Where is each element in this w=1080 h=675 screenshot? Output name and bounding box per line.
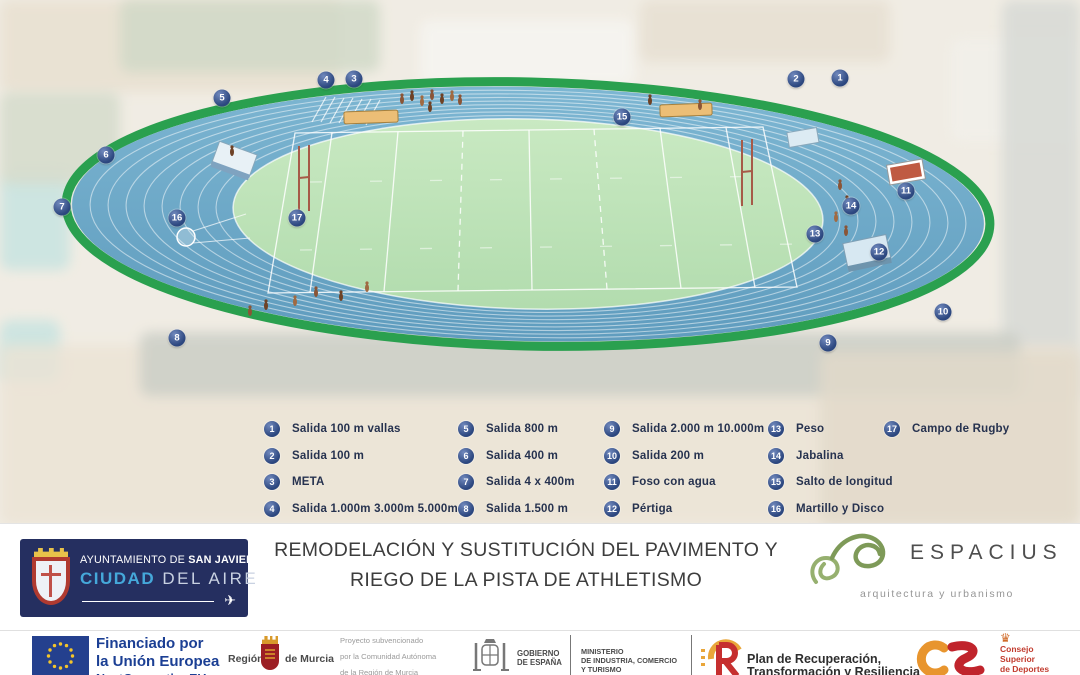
track-marker-3: 3: [346, 71, 363, 88]
track-marker-4: 4: [318, 72, 335, 89]
legend-column: 17Campo de Rugby: [884, 416, 1009, 443]
ministerio-line-1: MINISTERIO: [581, 647, 624, 656]
eu-flag-icon: [32, 636, 89, 675]
murcia-crest-icon: [261, 636, 279, 672]
espacius-glyph-icon: [806, 528, 902, 586]
legend-number-badge: 14: [768, 448, 784, 464]
legend-item-5: 5Salida 800 m: [458, 416, 575, 443]
title-line-1: REMODELACIÓN Y SUSTITUCIÓN DEL PAVIMENTO…: [250, 535, 802, 565]
espacius-name: ESPACIUS: [910, 541, 1063, 565]
plan-line-1: Plan de Recuperación,: [747, 652, 881, 666]
subsidy-line-3: de la Región de Murcia: [340, 668, 418, 675]
subsidy-line-2: por la Comunidad Autónoma: [340, 652, 436, 661]
legend-label: Jabalina: [796, 450, 844, 462]
legend-item-17: 17Campo de Rugby: [884, 416, 1009, 443]
recovery-plan-logo-icon: [699, 637, 743, 675]
legend-label: Salida 2.000 m 10.000m: [632, 423, 764, 435]
track-marker-9: 9: [820, 335, 837, 352]
track-marker-5: 5: [214, 90, 231, 107]
legend-label: Foso con agua: [632, 476, 716, 488]
subsidy-line-1: Proyecto subvencionado: [340, 636, 423, 645]
csd-line-2: Superior: [1000, 654, 1035, 664]
legend-item-1: 1Salida 100 m vallas: [264, 416, 458, 443]
legend-item-14: 14Jabalina: [768, 443, 893, 470]
legend-label: Salida 4 x 400m: [486, 476, 575, 488]
legend-number-badge: 2: [264, 448, 280, 464]
legend-number-badge: 10: [604, 448, 620, 464]
murcia-label-left: Región: [228, 653, 264, 665]
track-marker-6: 6: [98, 147, 115, 164]
legend-number-badge: 6: [458, 448, 474, 464]
legend-label: Pértiga: [632, 503, 672, 515]
san-javier-text: AYUNTAMIENTO DE SAN JAVIER CIUDAD DEL AI…: [80, 554, 238, 589]
del-aire-label: DEL AIRE: [155, 569, 258, 588]
track-marker-15: 15: [614, 109, 631, 126]
legend-item-8: 8Salida 1.500 m: [458, 496, 575, 523]
legend-number-badge: 16: [768, 501, 784, 517]
track-marker-11: 11: [898, 183, 915, 200]
title-band: AYUNTAMIENTO DE SAN JAVIER CIUDAD DEL AI…: [0, 523, 1080, 630]
legend-item-6: 6Salida 400 m: [458, 443, 575, 470]
legend-column: 9Salida 2.000 m 10.000m10Salida 200 m11F…: [604, 416, 764, 522]
espacius-tagline: arquitectura y urbanismo: [860, 588, 1014, 600]
legend-item-9: 9Salida 2.000 m 10.000m: [604, 416, 764, 443]
legend-label: Salida 400 m: [486, 450, 558, 462]
legend-item-10: 10Salida 200 m: [604, 443, 764, 470]
divider: [691, 635, 692, 675]
track-marker-16: 16: [169, 210, 186, 227]
legend-number-badge: 4: [264, 501, 280, 517]
legend-column: 13Peso14Jabalina15Salto de longitud16Mar…: [768, 416, 893, 522]
track-marker-10: 10: [935, 304, 952, 321]
gobierno-line-2: DE ESPAÑA: [517, 658, 562, 667]
legend-item-7: 7Salida 4 x 400m: [458, 469, 575, 496]
ciudad-label: CIUDAD: [80, 569, 155, 588]
legend-column: 1Salida 100 m vallas2Salida 100 m3META4S…: [264, 416, 458, 522]
legend-number-badge: 12: [604, 501, 620, 517]
underline: [82, 601, 214, 603]
legend-number-badge: 7: [458, 474, 474, 490]
csd-logo-icon: [910, 640, 992, 675]
legend-number-badge: 11: [604, 474, 620, 490]
legend-label: Martillo y Disco: [796, 503, 884, 515]
san-javier-crest-icon: [32, 548, 70, 606]
legend-label: Salida 1.000m 3.000m 5.000m: [292, 503, 458, 515]
csd-crown-icon: ♛: [1000, 631, 1011, 645]
legend-item-13: 13Peso: [768, 416, 893, 443]
legend-label: Peso: [796, 423, 824, 435]
ayuntamiento-label: AYUNTAMIENTO DE: [80, 554, 188, 566]
legend-label: Salida 200 m: [632, 450, 704, 462]
track-marker-17: 17: [289, 210, 306, 227]
legend-item-4: 4Salida 1.000m 3.000m 5.000m: [264, 496, 458, 523]
legend-number-badge: 5: [458, 421, 474, 437]
legend-label: Campo de Rugby: [912, 423, 1009, 435]
csd-line-1: Consejo: [1000, 644, 1034, 654]
legend-number-badge: 8: [458, 501, 474, 517]
aerial-scene: 1234567891011121314151617 1Salida 100 m …: [0, 0, 1080, 525]
funding-logo-strip: Financiado por la Unión Europea NextGene…: [0, 630, 1080, 675]
legend-label: Salida 100 m vallas: [292, 423, 401, 435]
legend-label: Salida 800 m: [486, 423, 558, 435]
legend-item-3: 3META: [264, 469, 458, 496]
airplane-icon: ✈: [224, 592, 236, 609]
project-title: REMODELACIÓN Y SUSTITUCIÓN DEL PAVIMENTO…: [250, 535, 802, 595]
legend-item-11: 11Foso con agua: [604, 469, 764, 496]
plan-line-2: Transformación y Resiliencia: [747, 665, 920, 675]
legend-number-badge: 1: [264, 421, 280, 437]
legend-column: 5Salida 800 m6Salida 400 m7Salida 4 x 40…: [458, 416, 575, 522]
legend-label: Salida 1.500 m: [486, 503, 568, 515]
spain-coat-of-arms-icon: [470, 637, 510, 675]
legend-item-12: 12Pértiga: [604, 496, 764, 523]
espacius-logo: ESPACIUS arquitectura y urbanismo: [800, 524, 1080, 631]
ministerio-line-2: DE INDUSTRIA, COMERCIO: [581, 656, 677, 665]
legend-item-2: 2Salida 100 m: [264, 443, 458, 470]
track-marker-7: 7: [54, 199, 71, 216]
legend-item-16: 16Martillo y Disco: [768, 496, 893, 523]
legend-label: Salto de longitud: [796, 476, 893, 488]
csd-line-3: de Deportes: [1000, 664, 1049, 674]
murcia-label-right: de Murcia: [285, 653, 334, 665]
legend: 1Salida 100 m vallas2Salida 100 m3META4S…: [0, 416, 1080, 524]
legend-number-badge: 13: [768, 421, 784, 437]
track-marker-8: 8: [169, 330, 186, 347]
legend-label: META: [292, 476, 325, 488]
title-line-2: RIEGO DE LA PISTA DE ATHLETISMO: [250, 565, 802, 595]
san-javier-logo: AYUNTAMIENTO DE SAN JAVIER CIUDAD DEL AI…: [20, 539, 248, 617]
san-javier-name: SAN JAVIER: [188, 554, 254, 566]
divider: [570, 635, 571, 675]
legend-number-badge: 9: [604, 421, 620, 437]
track-marker-12: 12: [871, 244, 888, 261]
legend-number-badge: 15: [768, 474, 784, 490]
legend-number-badge: 3: [264, 474, 280, 490]
eu-funding-line-2: la Unión Europea: [96, 653, 219, 670]
gobierno-line-1: GOBIERNO: [517, 649, 559, 658]
legend-label: Salida 100 m: [292, 450, 364, 462]
track-marker-14: 14: [843, 198, 860, 215]
track-marker-13: 13: [807, 226, 824, 243]
ministerio-line-3: Y TURISMO: [581, 665, 621, 674]
legend-item-15: 15Salto de longitud: [768, 469, 893, 496]
eu-funding-line-1: Financiado por: [96, 635, 204, 652]
track-marker-2: 2: [788, 71, 805, 88]
track-marker-1: 1: [832, 70, 849, 87]
legend-number-badge: 17: [884, 421, 900, 437]
